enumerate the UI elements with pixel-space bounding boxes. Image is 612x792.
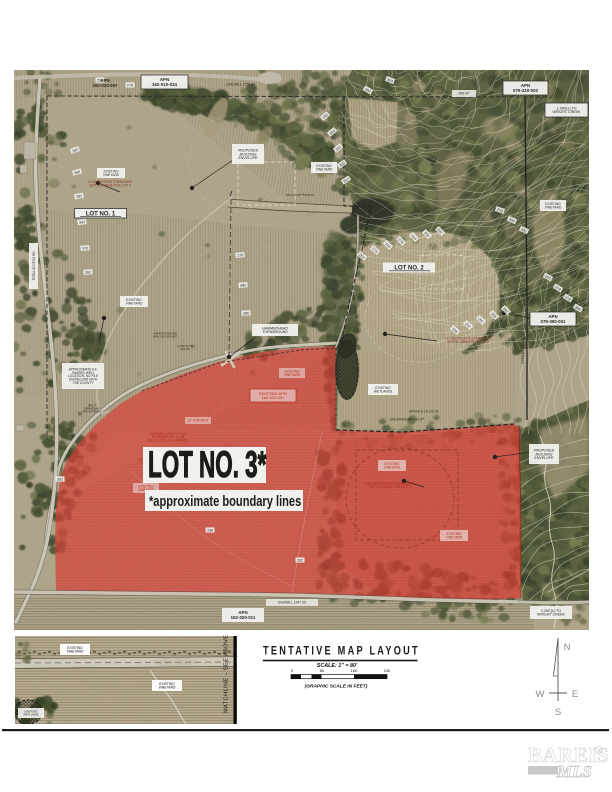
svg-text:VINEYARD: VINEYARD (159, 685, 176, 689)
svg-text:80: 80 (320, 668, 325, 673)
svg-text:S: S (555, 707, 561, 718)
svg-text:N: N (564, 642, 571, 653)
svg-text:TENTATIVE MAP LAYOUT: TENTATIVE MAP LAYOUT (263, 646, 420, 658)
svg-text:MATCHLINE – SEE ABOVE: MATCHLINE – SEE ABOVE (224, 635, 230, 713)
svg-text:E: E (572, 689, 578, 700)
svg-text:160: 160 (351, 668, 358, 673)
svg-text:W: W (536, 689, 545, 700)
svg-text:MLS: MLS (556, 762, 592, 781)
svg-text:240: 240 (384, 668, 391, 673)
svg-text:WETLANDS: WETLANDS (23, 713, 39, 717)
svg-text:(GRAPHIC SCALE IN FEET): (GRAPHIC SCALE IN FEET) (305, 684, 368, 690)
svg-text:VINEYARD: VINEYARD (67, 649, 84, 653)
